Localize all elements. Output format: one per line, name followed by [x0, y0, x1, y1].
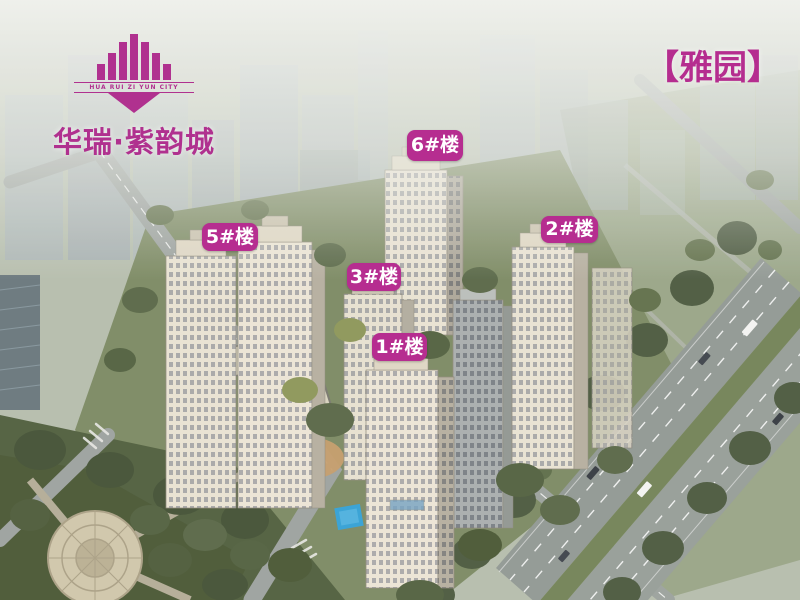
building-label-2: 2#楼: [541, 216, 598, 243]
building-label-6: 6#楼: [407, 130, 463, 161]
building-label-3: 3#楼: [347, 263, 401, 291]
logo-tagline: HUA RUI ZI YUN CITY: [74, 82, 194, 93]
logo-triangle-icon: [108, 93, 160, 113]
building-skyline-icon: [52, 34, 216, 80]
phase-badge: 【雅园】: [645, 40, 781, 89]
aerial-rendering: HUA RUI ZI YUN CITY 华瑞·紫韵城 【雅园】 6#楼 5#楼 …: [0, 0, 800, 600]
developer-logo: HUA RUI ZI YUN CITY 华瑞·紫韵城: [52, 34, 216, 161]
building-label-5: 5#楼: [202, 223, 258, 251]
logo-name: 华瑞·紫韵城: [52, 119, 216, 161]
building-label-1: 1#楼: [372, 333, 427, 361]
